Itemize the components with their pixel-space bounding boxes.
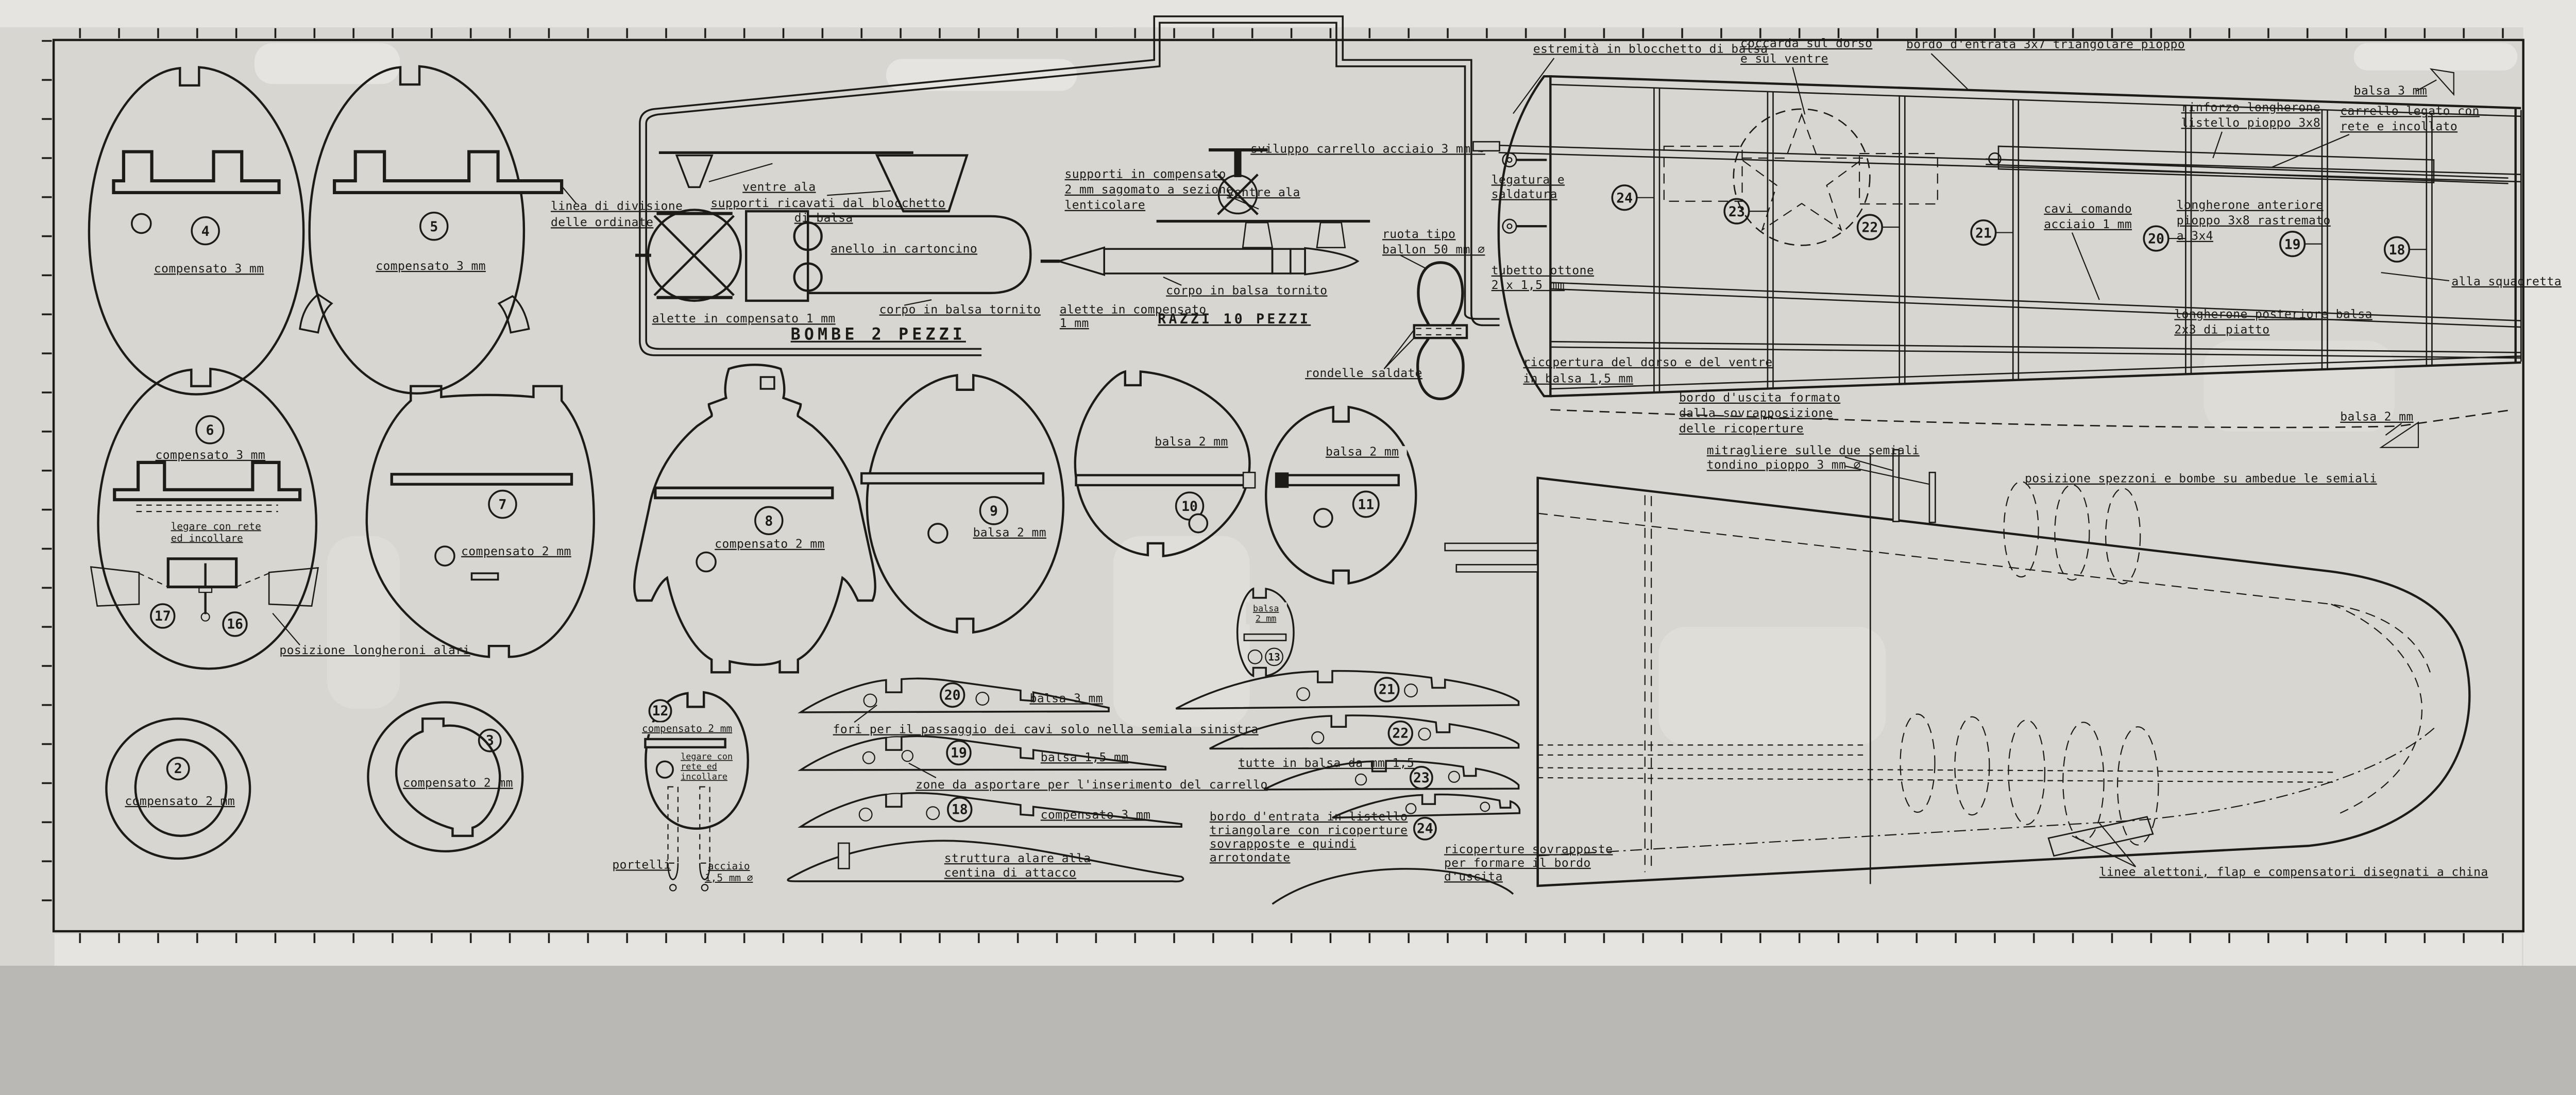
- attachment-details: legatura e saldatura tubetto ottone 2 x …: [1492, 153, 1594, 292]
- leader-line: [1931, 54, 1968, 89]
- former-10: 10 balsa 2 mm: [1075, 371, 1255, 556]
- leader-line: [1792, 67, 1805, 115]
- spar-doubler-note: rinforzo longherone: [2181, 101, 2321, 114]
- leader-line: [1513, 58, 1554, 114]
- former-10-material: balsa 2 mm: [1155, 435, 1228, 449]
- lash-note-12: legare con: [681, 751, 733, 762]
- lightening-hole: [656, 761, 673, 778]
- rear-spar-note: longherone posteriore balsa: [2174, 307, 2372, 321]
- former-7-material: compensato 2 mm: [461, 545, 571, 558]
- lash-note: legare con rete: [171, 520, 261, 532]
- machine-gun-barrel: [1929, 472, 1935, 522]
- gear-coil: [1986, 146, 2508, 183]
- leader-line: [709, 164, 772, 182]
- former-13-material: balsa: [1253, 603, 1279, 613]
- turned-balsa-note: corpo in balsa tornito: [1166, 284, 1327, 298]
- former-13-number: 13: [1268, 651, 1280, 663]
- rib-24-callout: 24: [1616, 190, 1633, 206]
- cardboard-ring-note: anello in cartoncino: [831, 242, 977, 255]
- bellcrank-note: alla squadretta: [2451, 275, 2562, 288]
- wing-underside-note: ventre ala: [742, 180, 816, 194]
- rear-spar-note-2: 2x3 di piatto: [2174, 323, 2269, 336]
- te-overlap-note-2: dalla sovrapposizione: [1679, 407, 1833, 420]
- rib-19-number: 19: [951, 745, 967, 761]
- former-12: 12 compensato 2 mm legare con rete ed in…: [612, 692, 753, 891]
- rib-21-callout: 21: [1975, 225, 1992, 241]
- leader-line: [273, 613, 300, 645]
- former-9: 9 balsa 2 mm: [861, 375, 1063, 632]
- rocket-support: [1317, 223, 1345, 248]
- support-note-2: di balsa: [794, 211, 853, 225]
- former-2-material: compensato 2 mm: [125, 795, 235, 808]
- former-8-material: compensato 2 mm: [715, 538, 825, 551]
- former-5-number: 5: [430, 219, 438, 235]
- former-10-number: 10: [1181, 499, 1198, 515]
- root-rib-note-2: centina di attacco: [944, 866, 1076, 880]
- rib-20-number: 20: [944, 687, 961, 703]
- machine-guns-note: mitragliere sulle due semiali: [1707, 444, 1920, 457]
- front-spar-note: longherone anteriore: [2177, 199, 2324, 212]
- gear-cutout-note: zone da asportare per l'inserimento del …: [916, 778, 1268, 792]
- lightening-hole: [435, 546, 454, 566]
- former-11-material: balsa 2 mm: [1326, 446, 1399, 459]
- former-2-number: 2: [174, 761, 182, 777]
- te-forming-note-2: per formare il bordo: [1444, 857, 1591, 870]
- lenticular-support-note-3: lenticolare: [1065, 199, 1146, 212]
- wire-gauge-note-2: 1,5 mm ∅: [705, 872, 753, 884]
- bolt-plate: [168, 559, 236, 587]
- rib-21-number: 21: [1379, 682, 1395, 698]
- rib-23-callout: 23: [1728, 204, 1745, 220]
- rib-18-material: compensato 3 mm: [1041, 808, 1151, 822]
- wire-gauge-note: acciaio: [708, 860, 750, 872]
- front-spar-note-3: a 3x4: [2177, 230, 2213, 243]
- former-11: 11 balsa 2 mm: [1266, 407, 1416, 583]
- ordnance-position-note: posizione spezzoni e bombe su ambedue le…: [2025, 472, 2377, 486]
- covering-note: ricopertura del dorso e del ventre: [1523, 356, 1772, 369]
- rocket-detail: supporti in compensato 2 mm sagomato a s…: [1041, 150, 1370, 330]
- ruler-ticks-top: [54, 28, 2523, 38]
- leader-line: [2272, 134, 2349, 167]
- te-overlap-note-3: delle ricoperture: [1679, 422, 1804, 436]
- rib-24-number: 24: [1417, 821, 1433, 837]
- lenticular-support-note: supporti in compensato: [1065, 168, 1226, 181]
- former-7: 7 compensato 2 mm: [367, 386, 594, 657]
- leader-line: [2385, 423, 2401, 435]
- ruler-ticks-left: [42, 40, 52, 931]
- le-strip-note: bordo d'entrata in listello: [1210, 810, 1408, 824]
- division-line-note: linea di divisione: [551, 199, 683, 213]
- rib-19-material: balsa 1,5 mm: [1041, 751, 1129, 764]
- lash-note-12b: rete ed: [681, 761, 717, 772]
- tip-sheet-note: balsa 3 mm: [2354, 84, 2427, 97]
- support-section-detail: [1209, 150, 1268, 214]
- former-6-number: 6: [206, 422, 214, 438]
- control-surfaces-note: linee alettoni, flap e compensatori dise…: [2099, 865, 2488, 879]
- spar-position-note: posizione longheroni alari: [279, 644, 470, 657]
- roundel-note-2: e sul ventre: [1740, 53, 1828, 66]
- leader-line: [854, 705, 877, 723]
- former-5-material: compensato 3 mm: [376, 260, 486, 273]
- lightening-hole: [1189, 514, 1207, 532]
- former-3-material: compensato 2 mm: [403, 777, 513, 790]
- rocket-body: [1104, 249, 1272, 273]
- rib-20-callout: 20: [2148, 231, 2164, 247]
- former-6-material: compensato 3 mm: [156, 449, 266, 462]
- former-2: 2 compensato 2 mm: [106, 718, 250, 859]
- wing-covering-plan: mitragliere sulle due semiali tondino pi…: [1445, 444, 2488, 886]
- turned-balsa-note: corpo in balsa tornito: [879, 303, 1041, 317]
- former-9-material: balsa 2 mm: [973, 526, 1046, 540]
- leader-line: [1384, 338, 1414, 369]
- lash-note-2: ed incollare: [171, 532, 243, 544]
- rib-18-callout: 18: [2389, 242, 2405, 258]
- plan-canvas: 4 compensato 3 mm 5 compensato 3 mm line…: [0, 0, 2576, 966]
- former-13-material-2: 2 mm: [1256, 613, 1276, 624]
- washers-note: rondelle saldate: [1305, 367, 1422, 380]
- bomb-support-front: [676, 156, 712, 187]
- former-3: 3 compensato 2 mm: [368, 703, 522, 851]
- former-9-number: 9: [990, 503, 998, 519]
- machine-gun-barrel: [1893, 450, 1899, 521]
- te-forming-note: ricoperture sovrapposte: [1444, 843, 1613, 856]
- rockets-title: RAZZI 10 PEZZI: [1158, 311, 1311, 327]
- leader-line: [2072, 233, 2099, 300]
- lightening-hole: [928, 524, 947, 543]
- ruler-ticks-bottom: [54, 933, 2523, 943]
- bomb-detail: anello in cartoncino ventre ala supporti…: [635, 152, 1041, 344]
- rib-23-number: 23: [1413, 770, 1430, 786]
- te-sheet-note: balsa 2 mm: [2340, 410, 2413, 424]
- leader-line: [827, 191, 890, 195]
- le-strip-note-4: arrotondate: [1210, 851, 1291, 864]
- gear-lash-note-2: rete e incollato: [2340, 120, 2458, 133]
- roundel: [1664, 109, 1938, 246]
- leader-line: [2213, 132, 2222, 158]
- former-4-number: 4: [201, 224, 210, 239]
- hatches-note: portelli: [612, 858, 671, 871]
- root-rib-note: struttura alare alla: [944, 852, 1091, 865]
- cable-holes-note: fori per il passaggio dei cavi solo nell…: [833, 723, 1259, 737]
- lightening-hole: [1248, 650, 1262, 663]
- lightening-hole: [1314, 509, 1332, 527]
- spars: [1473, 142, 2521, 358]
- le-strip-note-3: sovrapposte e quindi: [1210, 837, 1357, 851]
- blueprint-sheet: 4 compensato 3 mm 5 compensato 3 mm line…: [0, 0, 2576, 966]
- part-16-number: 16: [227, 617, 243, 632]
- wheel-note-2: ballon 50 mm ∅: [1382, 243, 1485, 256]
- support-note: supporti ricavati dal blocchetto: [710, 197, 945, 210]
- former-4-material: compensato 3 mm: [154, 262, 264, 276]
- front-spar-note-2: pioppo 3x8 rastremato: [2177, 214, 2331, 228]
- le-strip-note-2: triangolare con ricoperture: [1210, 824, 1408, 837]
- leading-edge-note: bordo d'entrata 3x7 triangolare pioppo: [1906, 38, 2185, 51]
- leader-line: [1384, 330, 1414, 369]
- control-cables-note-2: acciaio 1 mm: [2044, 218, 2132, 231]
- spar-doubler-note-2: listello pioppo 3x8: [2181, 116, 2321, 130]
- former-3-number: 3: [486, 732, 494, 748]
- gear-lash-note: carrello legato con: [2340, 105, 2480, 118]
- tip-block: [1499, 76, 1551, 396]
- former-4: 4 compensato 3 mm: [89, 67, 303, 395]
- wing-structure-plan: 24 23 22 21 20 19 18 estremità in blocch…: [1473, 37, 2562, 448]
- former-6: 6 compensato 3 mm legare con rete ed inc…: [91, 369, 470, 669]
- rocket-fins: [1059, 248, 1104, 275]
- rib-22-number: 22: [1392, 725, 1409, 741]
- machine-guns-note-2: tondino pioppo 3 mm ∅: [1707, 458, 1861, 472]
- gear-wire-note: sviluppo carrello acciaio 3 mm ∅: [1250, 142, 1485, 156]
- wheel-hub: [1414, 326, 1467, 338]
- former-8: 8 compensato 2 mm: [634, 365, 875, 672]
- wheel-detail: ruota tipo ballon 50 mm ∅ rondelle salda…: [1305, 228, 1485, 399]
- tip-block-note: estremità in blocchetto di balsa: [1533, 42, 1768, 56]
- wheel-note: ruota tipo: [1382, 228, 1455, 241]
- lightening-hole: [697, 552, 716, 571]
- bombs-title: BOMBE 2 PEZZI: [791, 326, 966, 344]
- rib-22-callout: 22: [1861, 220, 1878, 236]
- fins-note-2: 1 mm: [1060, 317, 1089, 330]
- rib-20-material: balsa 3 mm: [1030, 692, 1103, 706]
- roundel-note: coccarda sul dorso: [1740, 37, 1872, 50]
- te-overlap-note: bordo d'uscita formato: [1679, 391, 1840, 405]
- lenticular-support-note-2: 2 mm sagomato a sezione: [1065, 183, 1234, 197]
- tailwheel-wire-hooks: [668, 863, 710, 880]
- rocket-support: [1243, 223, 1272, 248]
- part-17-number: 17: [155, 608, 171, 624]
- wing-underside-note: ventre ala: [1227, 186, 1300, 199]
- rib-18-number: 18: [952, 802, 968, 818]
- former-7-number: 7: [499, 497, 507, 513]
- control-cables-note: cavi comando: [2044, 202, 2132, 216]
- former-5: 5 compensato 3 mm linea di divisione del…: [300, 66, 683, 393]
- brass-tube-note: tubetto ottone: [1492, 264, 1594, 278]
- former-12-material: compensato 2 mm: [642, 723, 732, 734]
- leader-line: [2381, 272, 2449, 281]
- lash-note-12c: incollare: [681, 771, 727, 781]
- rib-19-callout: 19: [2284, 236, 2301, 252]
- former-8-number: 8: [765, 513, 773, 529]
- former-12-number: 12: [652, 703, 669, 719]
- rocket-nose: [1305, 248, 1358, 275]
- leader-line: [1400, 255, 1427, 269]
- covering-note-2: in balsa 1,5 mm: [1523, 372, 1633, 386]
- former-11-number: 11: [1358, 497, 1374, 513]
- division-line-note-2: delle ordinate: [551, 216, 653, 229]
- fins-note: alette in compensato 1 mm: [652, 312, 836, 326]
- lightening-hole: [132, 214, 151, 233]
